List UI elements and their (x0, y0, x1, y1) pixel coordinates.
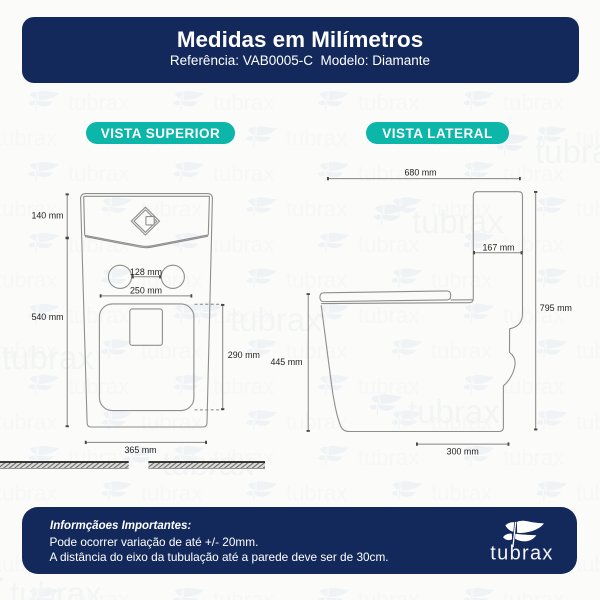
svg-text:365 mm: 365 mm (124, 445, 156, 455)
svg-text:290 mm: 290 mm (228, 350, 260, 360)
svg-text:795 mm: 795 mm (540, 303, 572, 313)
svg-text:167 mm: 167 mm (482, 243, 514, 253)
svg-text:250 mm: 250 mm (130, 286, 162, 296)
svg-text:300 mm: 300 mm (447, 446, 479, 456)
svg-text:540 mm: 540 mm (31, 312, 63, 322)
svg-text:tubrax: tubrax (490, 543, 553, 565)
svg-text:140 mm: 140 mm (31, 211, 63, 221)
svg-text:128 mm: 128 mm (130, 267, 162, 277)
svg-text:445 mm: 445 mm (270, 357, 302, 367)
svg-text:680 mm: 680 mm (404, 167, 436, 177)
